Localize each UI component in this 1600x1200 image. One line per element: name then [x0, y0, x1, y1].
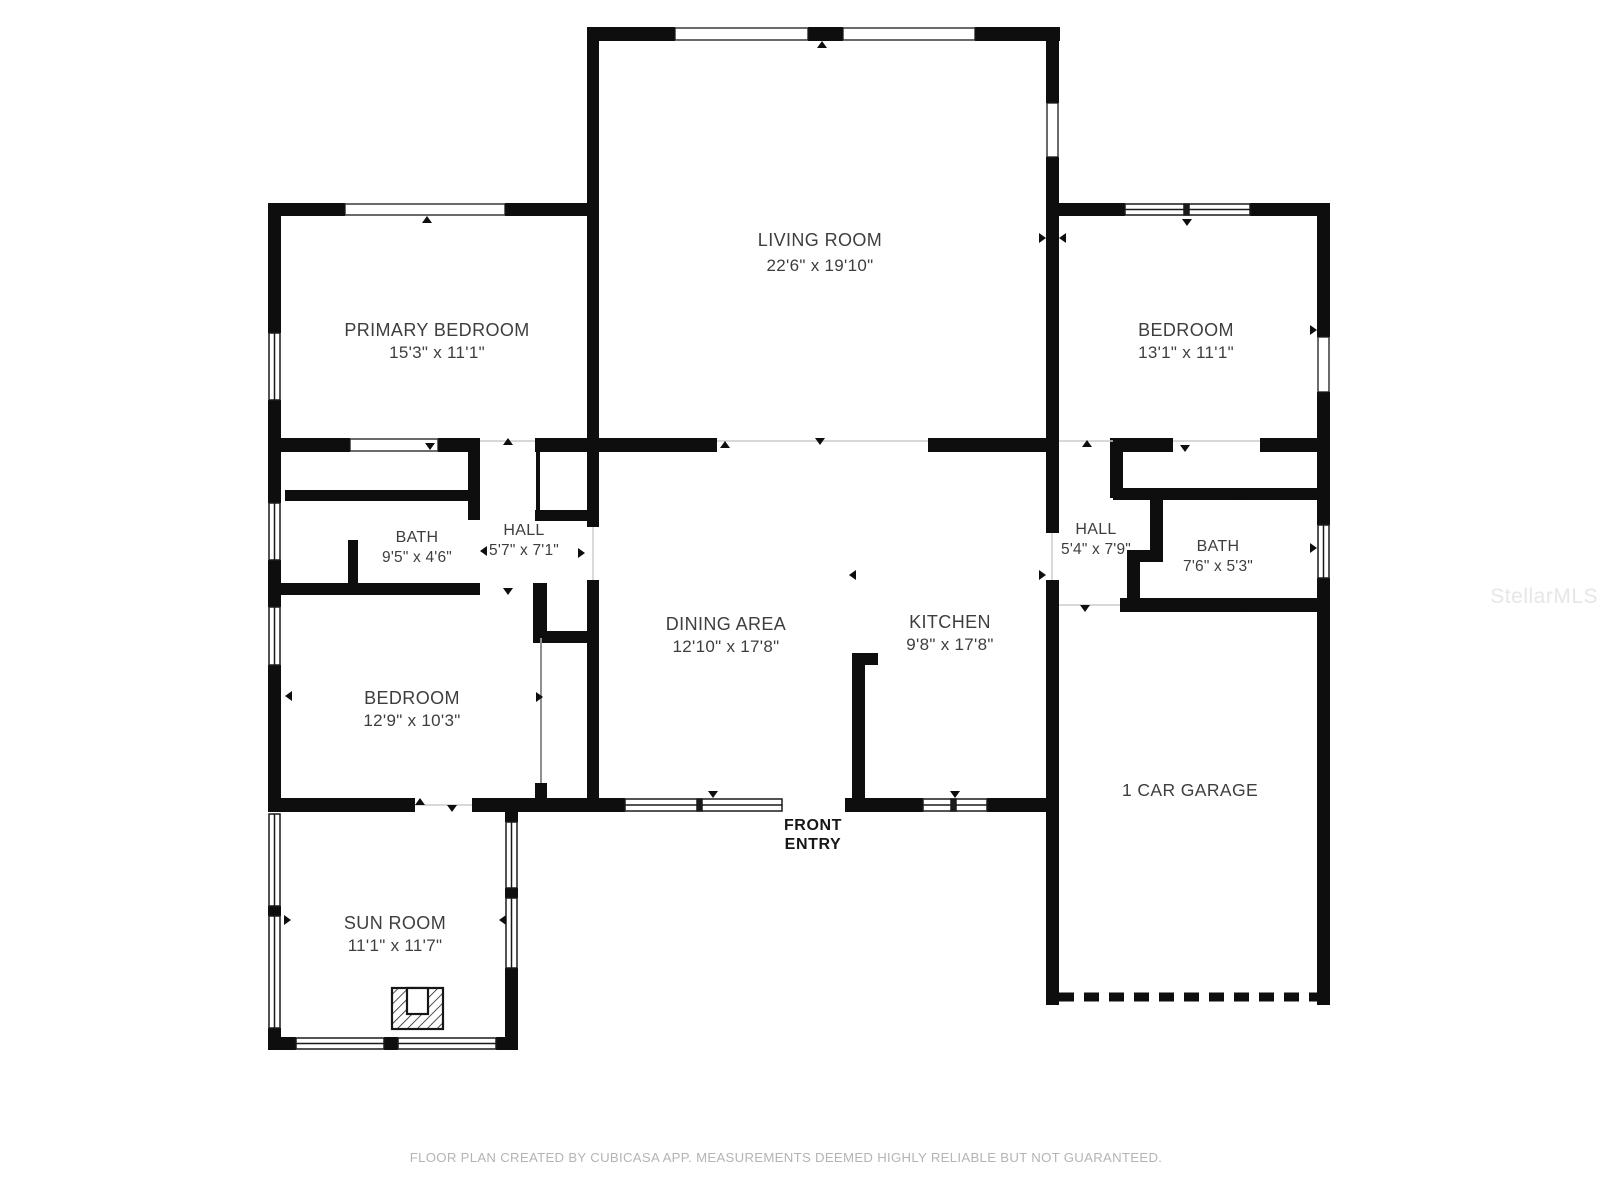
- wall-segment: [1150, 498, 1163, 556]
- front-entry-line1: FRONT: [784, 817, 842, 834]
- wall-segment: [987, 798, 1059, 812]
- wall-segment: [268, 203, 281, 333]
- window-icon: [269, 916, 280, 1028]
- opening-arrow: [285, 691, 292, 701]
- wall-segment: [587, 27, 675, 41]
- window-icon: [506, 898, 517, 968]
- room-label-hall-right: HALL: [1075, 521, 1116, 538]
- wall-segment: [1317, 578, 1330, 1005]
- wall-segment: [1046, 580, 1059, 1005]
- window-icon: [296, 1038, 384, 1049]
- room-label-sun-room: SUN ROOM: [344, 913, 446, 933]
- room-dims-kitchen: 9'8" x 17'8": [906, 635, 993, 654]
- front-entry-label: FRONT ENTRY: [784, 817, 842, 853]
- opening-arrow: [720, 441, 730, 448]
- wall-segment: [928, 438, 1046, 452]
- floor-plan-page: LIVING ROOM 22'6" x 19'10" PRIMARY BEDRO…: [0, 0, 1600, 1200]
- opening-slit: [675, 28, 808, 40]
- wall-segment: [1317, 392, 1330, 438]
- room-dims-bath-right: 7'6" x 5'3": [1183, 558, 1253, 575]
- room-label-dining-area: DINING AREA: [666, 614, 786, 634]
- room-label-hall-left: HALL: [503, 522, 544, 539]
- window-icon: [269, 333, 280, 400]
- wall-segment: [1046, 27, 1059, 103]
- wall-segment: [533, 631, 599, 643]
- opening-arrow: [578, 548, 585, 558]
- opening-arrow: [1059, 233, 1066, 243]
- wall-segment: [268, 906, 281, 916]
- wall-segment: [505, 203, 587, 216]
- room-label-bedroom-right: BEDROOM: [1138, 320, 1234, 340]
- window-icon: [1125, 204, 1250, 215]
- opening-arrow: [950, 791, 960, 798]
- window-icon: [506, 822, 517, 888]
- opening-arrow: [447, 805, 457, 812]
- opening-slit: [843, 28, 975, 40]
- room-dims-bath-left: 9'5" x 4'6": [382, 549, 452, 566]
- wall-segment: [268, 1037, 296, 1050]
- opening-arrow: [480, 546, 487, 556]
- wall-segment: [1113, 488, 1330, 500]
- window-icon: [398, 1038, 496, 1049]
- wall-segment: [268, 665, 281, 798]
- floor-plan-drawing: LIVING ROOM 22'6" x 19'10" PRIMARY BEDRO…: [0, 0, 1600, 1200]
- wall-segment: [505, 888, 518, 898]
- footer-disclaimer: FLOOR PLAN CREATED BY CUBICASA APP. MEAS…: [410, 1150, 1163, 1165]
- opening-arrow: [849, 570, 856, 580]
- room-label-garage: 1 CAR GARAGE: [1122, 780, 1258, 800]
- room-dims-hall-left: 5'7" x 7'1": [489, 542, 559, 559]
- opening-arrow: [1310, 325, 1317, 335]
- wall-segment: [268, 798, 415, 812]
- opening-arrow: [422, 216, 432, 223]
- room-label-bedroom-left: BEDROOM: [364, 688, 460, 708]
- opening-slit: [1318, 337, 1329, 392]
- window-icon: [269, 503, 280, 560]
- room-dims-bedroom-right: 13'1" x 11'1": [1138, 343, 1234, 362]
- wall-segment: [536, 452, 540, 510]
- wall-segment: [268, 438, 350, 452]
- wall-segment: [1046, 157, 1059, 438]
- room-dims-sun-room: 11'1" x 11'7": [348, 936, 443, 955]
- wall-segment: [1260, 438, 1330, 452]
- wall-segment: [533, 583, 547, 638]
- wall-segment: [852, 653, 878, 665]
- wall-segment: [384, 1037, 398, 1050]
- wall-segment: [1317, 203, 1330, 337]
- opening-arrow: [1039, 233, 1046, 243]
- room-label-bath-right: BATH: [1197, 538, 1240, 555]
- wall-segment: [468, 438, 480, 520]
- window-icon: [923, 799, 987, 811]
- opening-arrow: [1039, 570, 1046, 580]
- wall-segment: [472, 798, 625, 812]
- window-icon: [269, 607, 280, 665]
- wall-segment: [1120, 598, 1330, 612]
- wall-segment: [348, 540, 358, 583]
- opening-arrow: [1182, 219, 1192, 226]
- room-label-kitchen: KITCHEN: [909, 612, 991, 632]
- opening-arrow: [415, 798, 425, 805]
- opening-slit: [350, 439, 438, 451]
- opening-arrow: [499, 915, 506, 925]
- wall-segment: [505, 968, 518, 978]
- room-dims-hall-right: 5'4" x 7'9": [1061, 541, 1131, 558]
- wall-segment: [845, 798, 923, 812]
- wall-segment: [587, 580, 599, 812]
- wall-segment: [496, 1037, 518, 1050]
- opening-arrow: [817, 41, 827, 48]
- opening-arrow: [284, 915, 291, 925]
- opening-arrow: [1080, 605, 1090, 612]
- opening-arrow: [708, 791, 718, 798]
- wall-segment: [535, 438, 717, 452]
- wall-segment: [535, 783, 547, 798]
- wall-segment: [852, 653, 865, 798]
- room-label-primary-bedroom: PRIMARY BEDROOM: [344, 320, 529, 340]
- wall-segment: [285, 490, 468, 501]
- window-icon: [269, 814, 280, 906]
- window-icon: [625, 799, 782, 811]
- opening-arrow: [1310, 543, 1317, 553]
- room-dims-primary-bedroom: 15'3" x 11'1": [389, 343, 485, 362]
- room-label-bath-left: BATH: [396, 529, 439, 546]
- room-dims-bedroom-left: 12'9" x 10'3": [363, 711, 460, 730]
- front-entry-line2: ENTRY: [785, 836, 842, 853]
- wall-segment: [808, 27, 843, 41]
- wall-segment: [535, 510, 599, 521]
- room-dims-living-room: 22'6" x 19'10": [767, 256, 874, 275]
- watermark-stellar-mls: StellarMLS: [1490, 585, 1598, 608]
- wall-segment: [505, 812, 518, 822]
- wall-segment: [1059, 203, 1125, 216]
- opening-slit: [1047, 103, 1058, 157]
- fireplace-icon: [392, 988, 443, 1029]
- room-dims-dining-area: 12'10" x 17'8": [673, 637, 780, 656]
- opening-slit: [345, 204, 505, 215]
- opening-arrow: [503, 588, 513, 595]
- window-icon: [1318, 525, 1329, 578]
- opening-arrow: [1180, 445, 1190, 452]
- wall-segment: [1046, 438, 1059, 533]
- room-label-living-room: LIVING ROOM: [758, 230, 882, 250]
